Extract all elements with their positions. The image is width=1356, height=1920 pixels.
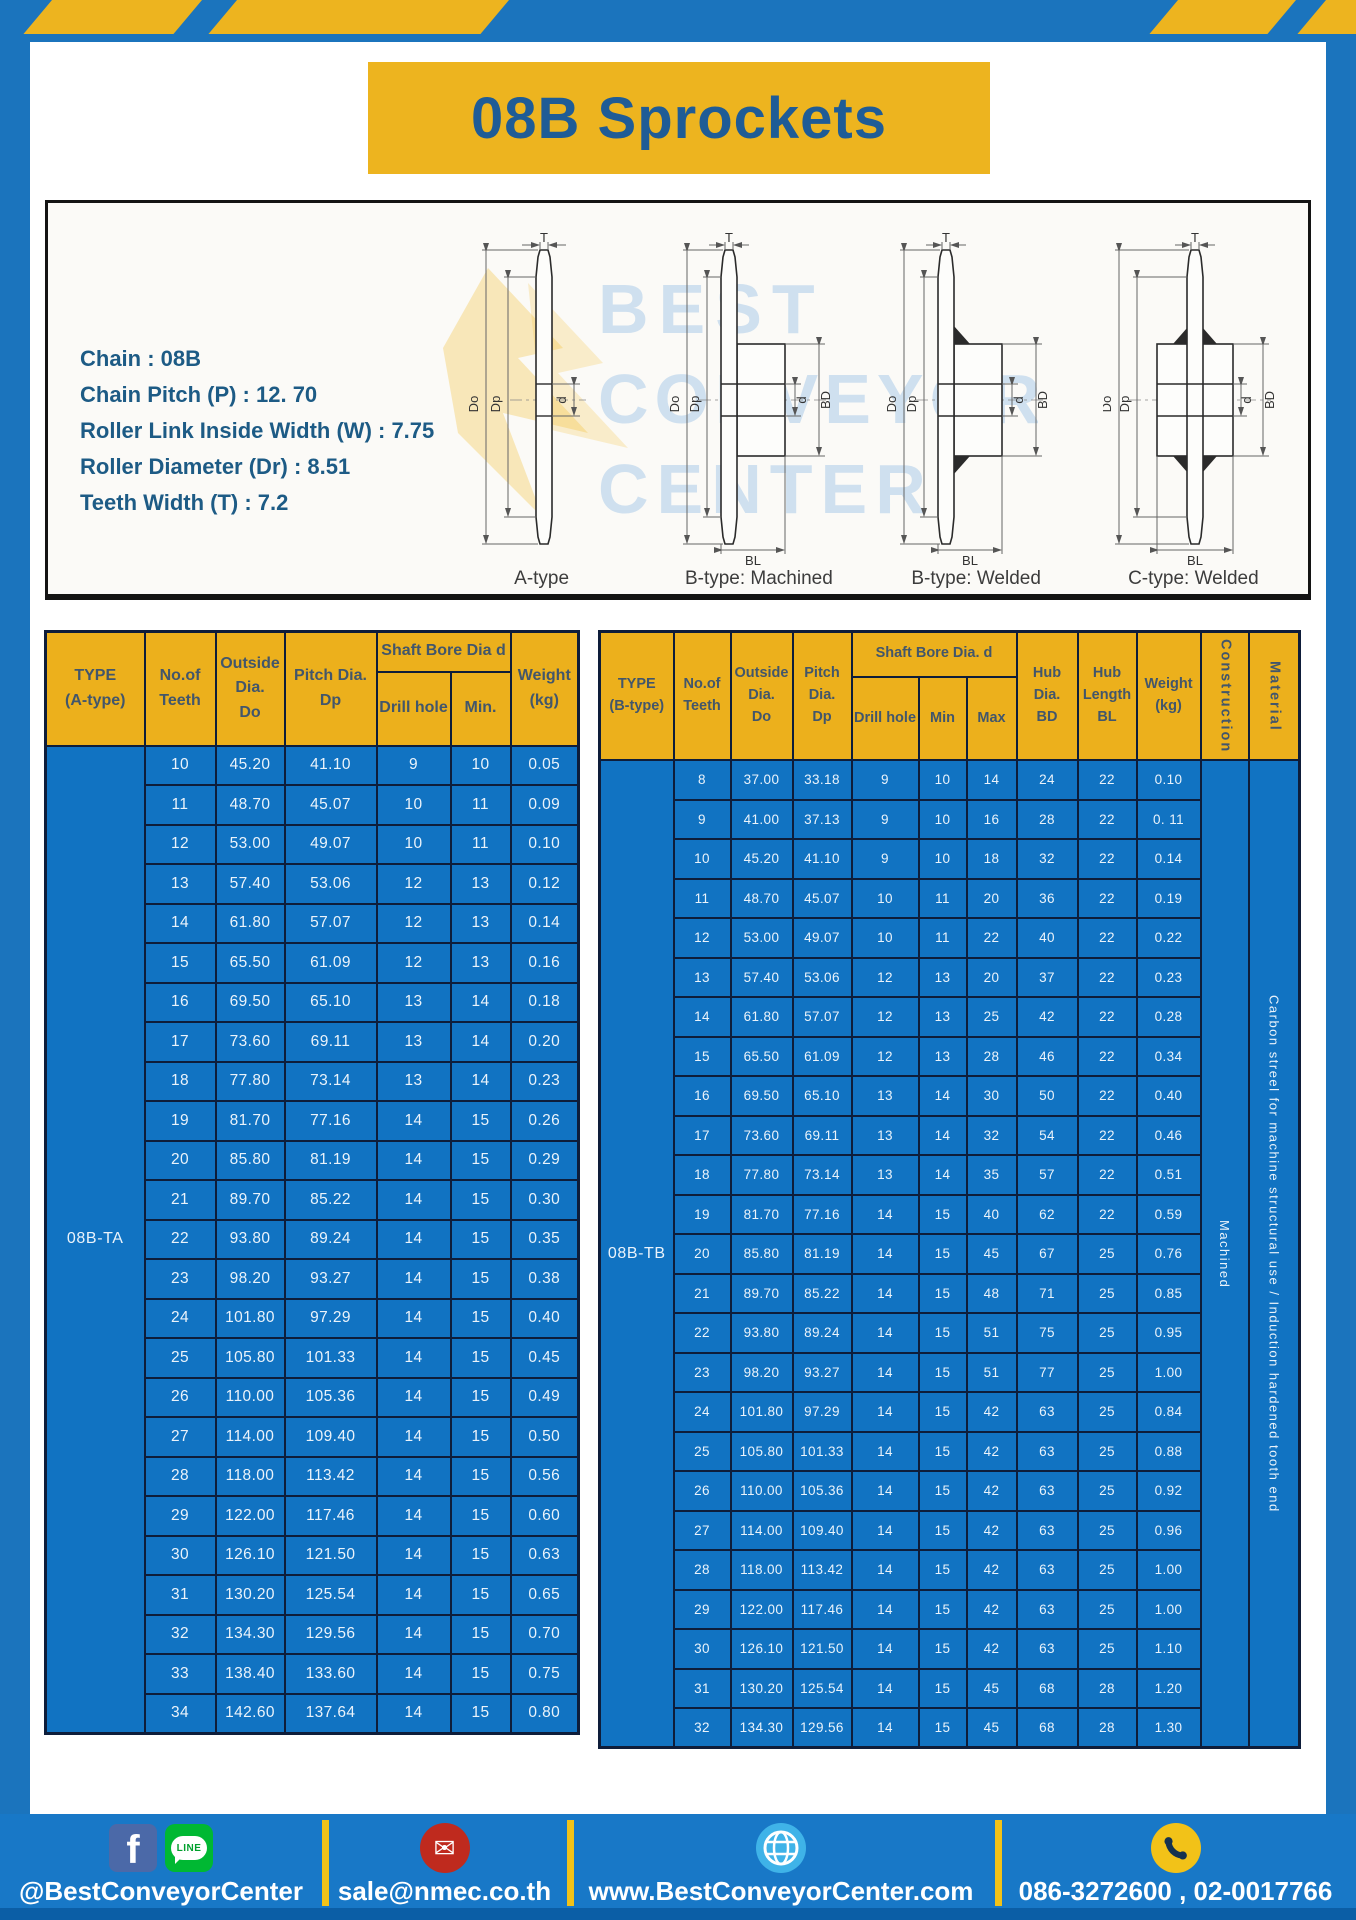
cell-drill-hole: 14 xyxy=(852,1550,919,1590)
table-row: 27114.00109.4014154263250.96 xyxy=(600,1511,1300,1551)
cell-teeth: 18 xyxy=(145,1062,216,1102)
cell-pitch-dia: 69.11 xyxy=(793,1116,852,1156)
stripe-decoration xyxy=(208,0,509,34)
cell-teeth: 34 xyxy=(145,1694,216,1734)
cell-max: 35 xyxy=(967,1155,1017,1195)
cell-drill-hole: 14 xyxy=(377,1654,451,1694)
cell-teeth: 33 xyxy=(145,1654,216,1694)
cell-outside-dia: 98.20 xyxy=(216,1259,285,1299)
header-pitch-a: Pitch Dia. Dp xyxy=(285,632,377,746)
cell-pitch-dia: 113.42 xyxy=(285,1457,377,1497)
footer-social-handle: @BestConveyorCenter xyxy=(19,1876,303,1906)
cell-hub-dia: 32 xyxy=(1017,839,1078,879)
cell-outside-dia: 126.10 xyxy=(216,1536,285,1576)
material-value: Carbon streel for machine structural use… xyxy=(1249,760,1300,1748)
table-row: 31130.20125.5414154568281.20 xyxy=(600,1669,1300,1709)
svg-text:T: T xyxy=(1191,232,1199,245)
cell-teeth: 9 xyxy=(674,800,731,840)
cell-hub-length: 25 xyxy=(1078,1234,1137,1274)
cell-min: 15 xyxy=(919,1669,967,1709)
header-hub-dia-b: Hub Dia. BD xyxy=(1017,632,1078,761)
cell-hub-length: 25 xyxy=(1078,1550,1137,1590)
drawing-c-type-welded: T Do Dp d BD BL C-type: xyxy=(1085,211,1302,595)
footer-social-section: f LINE @BestConveyorCenter xyxy=(0,1814,322,1912)
cell-min: 14 xyxy=(451,1022,511,1062)
cell-min: 15 xyxy=(451,1299,511,1339)
cell-min: 15 xyxy=(919,1353,967,1393)
right-border xyxy=(1326,42,1356,1920)
footer-bottom-strip xyxy=(0,1908,1356,1920)
spec-list: Chain : 08B Chain Pitch (P) : 12. 70 Rol… xyxy=(80,341,460,521)
footer-phone-section: 086-3272600 , 02-0017766 xyxy=(995,1814,1356,1912)
drawing-a-type: T Do Dp d A-type xyxy=(433,211,650,595)
cell-teeth: 12 xyxy=(674,918,731,958)
cell-drill-hole: 14 xyxy=(852,1432,919,1472)
cell-drill-hole: 12 xyxy=(377,943,451,983)
cell-hub-dia: 63 xyxy=(1017,1432,1078,1472)
table-row: 941.0037.139101628220. 11 xyxy=(600,800,1300,840)
header-drill-hole-b: Drill hole xyxy=(852,677,919,761)
cell-teeth: 11 xyxy=(145,785,216,825)
cell-hub-dia: 63 xyxy=(1017,1550,1078,1590)
header-construction-b: Construction xyxy=(1201,632,1249,761)
line-bubble-tail xyxy=(175,1857,182,1864)
cell-teeth: 29 xyxy=(674,1590,731,1630)
header-hub-length-b: Hub Length BL xyxy=(1078,632,1137,761)
cell-teeth: 25 xyxy=(674,1432,731,1472)
cell-drill-hole: 14 xyxy=(852,1234,919,1274)
cell-teeth: 10 xyxy=(145,746,216,786)
cell-weight: 1.10 xyxy=(1137,1629,1201,1669)
cell-hub-dia: 42 xyxy=(1017,997,1078,1037)
cell-hub-length: 22 xyxy=(1078,800,1137,840)
cell-outside-dia: 98.20 xyxy=(731,1353,793,1393)
spec-chain-pitch: Chain Pitch (P) : 12. 70 xyxy=(80,377,460,413)
cell-teeth: 15 xyxy=(145,943,216,983)
cell-hub-length: 25 xyxy=(1078,1629,1137,1669)
table-row: 08B-TB837.0033.189101424220.10MachinedCa… xyxy=(600,760,1300,800)
cell-drill-hole: 14 xyxy=(377,1417,451,1457)
cell-teeth: 31 xyxy=(674,1669,731,1709)
cell-drill-hole: 14 xyxy=(377,1615,451,1655)
table-row: 08B-TA1045.2041.109100.05 xyxy=(46,746,579,786)
svg-text:BD: BD xyxy=(1262,391,1277,409)
cell-outside-dia: 69.50 xyxy=(731,1076,793,1116)
cell-hub-dia: 63 xyxy=(1017,1590,1078,1630)
cell-hub-dia: 75 xyxy=(1017,1313,1078,1353)
cell-weight: 0.34 xyxy=(1137,1037,1201,1077)
cell-weight: 1.30 xyxy=(1137,1708,1201,1748)
cell-min: 13 xyxy=(919,958,967,998)
cell-teeth: 29 xyxy=(145,1496,216,1536)
cell-min: 13 xyxy=(451,864,511,904)
cell-teeth: 30 xyxy=(145,1536,216,1576)
cell-outside-dia: 105.80 xyxy=(216,1338,285,1378)
header-teeth-a: No.of Teeth xyxy=(145,632,216,746)
cell-max: 22 xyxy=(967,918,1017,958)
header-outside-a: Outside Dia. Do xyxy=(216,632,285,746)
cell-hub-length: 22 xyxy=(1078,997,1137,1037)
cell-min: 14 xyxy=(919,1076,967,1116)
cell-outside-dia: 114.00 xyxy=(731,1511,793,1551)
cell-pitch-dia: 73.14 xyxy=(285,1062,377,1102)
cell-pitch-dia: 93.27 xyxy=(793,1353,852,1393)
cell-outside-dia: 77.80 xyxy=(216,1062,285,1102)
spec-roller-width: Roller Link Inside Width (W) : 7.75 xyxy=(80,413,460,449)
table-row: 1253.0049.0710112240220.22 xyxy=(600,918,1300,958)
svg-text:Do: Do xyxy=(886,396,899,413)
cell-hub-length: 25 xyxy=(1078,1590,1137,1630)
cell-pitch-dia: 65.10 xyxy=(793,1076,852,1116)
cell-hub-length: 22 xyxy=(1078,958,1137,998)
cell-drill-hole: 13 xyxy=(377,1022,451,1062)
cell-max: 51 xyxy=(967,1313,1017,1353)
header-weight-a: Weight (kg) xyxy=(511,632,579,746)
stripe-decoration xyxy=(1297,0,1356,34)
globe-icon xyxy=(756,1823,806,1873)
cell-teeth: 24 xyxy=(145,1299,216,1339)
cell-max: 42 xyxy=(967,1392,1017,1432)
cell-min: 14 xyxy=(919,1116,967,1156)
header-weight-b: Weight (kg) xyxy=(1137,632,1201,761)
cell-hub-length: 22 xyxy=(1078,1155,1137,1195)
spec-chain: Chain : 08B xyxy=(80,341,460,377)
cell-pitch-dia: 113.42 xyxy=(793,1550,852,1590)
cell-teeth: 8 xyxy=(674,760,731,800)
cell-weight: 0.22 xyxy=(1137,918,1201,958)
cell-max: 48 xyxy=(967,1274,1017,1314)
svg-text:Dp: Dp xyxy=(687,396,702,413)
cell-pitch-dia: 49.07 xyxy=(285,825,377,865)
cell-max: 42 xyxy=(967,1432,1017,1472)
drawing-b-type-welded: T Do Dp d BD BL B-type: xyxy=(868,211,1085,595)
table-row: 2189.7085.2214154871250.85 xyxy=(600,1274,1300,1314)
cell-weight: 0.18 xyxy=(511,983,579,1023)
cell-teeth: 20 xyxy=(674,1234,731,1274)
cell-pitch-dia: 129.56 xyxy=(793,1708,852,1748)
cell-pitch-dia: 53.06 xyxy=(793,958,852,998)
cell-teeth: 32 xyxy=(145,1615,216,1655)
cell-min: 15 xyxy=(451,1259,511,1299)
cell-teeth: 32 xyxy=(674,1708,731,1748)
cell-weight: 0.76 xyxy=(1137,1234,1201,1274)
svg-text:Do: Do xyxy=(466,396,481,413)
cell-drill-hole: 12 xyxy=(377,904,451,944)
cell-pitch-dia: 133.60 xyxy=(285,1654,377,1694)
cell-max: 18 xyxy=(967,839,1017,879)
table-row: 1357.4053.0612132037220.23 xyxy=(600,958,1300,998)
cell-teeth: 11 xyxy=(674,879,731,919)
svg-text:Do: Do xyxy=(1103,396,1114,413)
svg-text:d: d xyxy=(794,396,809,403)
cell-outside-dia: 118.00 xyxy=(216,1457,285,1497)
cell-pitch-dia: 125.54 xyxy=(285,1575,377,1615)
cell-pitch-dia: 89.24 xyxy=(793,1313,852,1353)
cell-max: 16 xyxy=(967,800,1017,840)
stripe-decoration xyxy=(23,0,202,34)
caption-a-type: A-type xyxy=(514,567,569,595)
svg-text:T: T xyxy=(942,232,950,245)
cell-teeth: 31 xyxy=(145,1575,216,1615)
cell-teeth: 19 xyxy=(145,1101,216,1141)
cell-drill-hole: 13 xyxy=(377,1062,451,1102)
cell-weight: 0.20 xyxy=(511,1022,579,1062)
cell-pitch-dia: 77.16 xyxy=(793,1195,852,1235)
cell-hub-dia: 71 xyxy=(1017,1274,1078,1314)
cell-outside-dia: 114.00 xyxy=(216,1417,285,1457)
caption-b-type-welded: B-type: Welded xyxy=(911,567,1041,595)
cell-drill-hole: 12 xyxy=(852,958,919,998)
table-row: 25105.80101.3314154263250.88 xyxy=(600,1432,1300,1472)
cell-weight: 0.88 xyxy=(1137,1432,1201,1472)
cell-max: 25 xyxy=(967,997,1017,1037)
cell-pitch-dia: 65.10 xyxy=(285,983,377,1023)
cell-drill-hole: 14 xyxy=(377,1575,451,1615)
cell-min: 15 xyxy=(919,1392,967,1432)
cell-weight: 1.20 xyxy=(1137,1669,1201,1709)
cell-min: 14 xyxy=(919,1155,967,1195)
cell-drill-hole: 10 xyxy=(852,879,919,919)
cell-weight: 0.23 xyxy=(511,1062,579,1102)
cell-min: 14 xyxy=(451,983,511,1023)
cell-outside-dia: 77.80 xyxy=(731,1155,793,1195)
cell-teeth: 21 xyxy=(145,1180,216,1220)
cell-teeth: 13 xyxy=(145,864,216,904)
cell-outside-dia: 101.80 xyxy=(216,1299,285,1339)
cell-weight: 0.51 xyxy=(1137,1155,1201,1195)
cell-drill-hole: 10 xyxy=(852,918,919,958)
cell-weight: 0.56 xyxy=(511,1457,579,1497)
cell-outside-dia: 105.80 xyxy=(731,1432,793,1472)
cell-drill-hole: 14 xyxy=(377,1496,451,1536)
cell-hub-length: 22 xyxy=(1078,1195,1137,1235)
cell-drill-hole: 14 xyxy=(852,1313,919,1353)
cell-outside-dia: 130.20 xyxy=(216,1575,285,1615)
cell-outside-dia: 61.80 xyxy=(216,904,285,944)
cell-weight: 0.40 xyxy=(511,1299,579,1339)
cell-min: 15 xyxy=(919,1629,967,1669)
cell-drill-hole: 14 xyxy=(852,1274,919,1314)
cell-pitch-dia: 61.09 xyxy=(793,1037,852,1077)
cell-max: 20 xyxy=(967,958,1017,998)
cell-pitch-dia: 109.40 xyxy=(285,1417,377,1457)
header-min-a: Min. xyxy=(451,672,511,746)
cell-outside-dia: 101.80 xyxy=(731,1392,793,1432)
svg-text:Dp: Dp xyxy=(488,396,503,413)
cell-hub-dia: 54 xyxy=(1017,1116,1078,1156)
cell-hub-length: 22 xyxy=(1078,918,1137,958)
cell-outside-dia: 45.20 xyxy=(731,839,793,879)
cell-drill-hole: 14 xyxy=(377,1378,451,1418)
cell-min: 15 xyxy=(451,1496,511,1536)
cell-outside-dia: 53.00 xyxy=(216,825,285,865)
cell-outside-dia: 57.40 xyxy=(731,958,793,998)
cell-pitch-dia: 109.40 xyxy=(793,1511,852,1551)
cell-hub-dia: 68 xyxy=(1017,1669,1078,1709)
cell-drill-hole: 14 xyxy=(377,1536,451,1576)
cell-min: 11 xyxy=(919,918,967,958)
cell-min: 15 xyxy=(919,1195,967,1235)
cell-drill-hole: 13 xyxy=(852,1155,919,1195)
cell-outside-dia: 110.00 xyxy=(216,1378,285,1418)
cell-min: 15 xyxy=(451,1180,511,1220)
cell-pitch-dia: 85.22 xyxy=(285,1180,377,1220)
cell-weight: 0.70 xyxy=(511,1615,579,1655)
header-type-a: TYPE (A-type) xyxy=(46,632,145,746)
table-row: 2293.8089.2414155175250.95 xyxy=(600,1313,1300,1353)
cell-hub-length: 25 xyxy=(1078,1353,1137,1393)
drawing-b-type-machined: T Do Dp d BD BL B-type: xyxy=(650,211,867,595)
cell-weight: 0.29 xyxy=(511,1141,579,1181)
table-row: 1565.5061.0912132846220.34 xyxy=(600,1037,1300,1077)
cell-outside-dia: 122.00 xyxy=(216,1496,285,1536)
svg-text:d: d xyxy=(1011,396,1026,403)
cell-min: 13 xyxy=(919,1037,967,1077)
cell-pitch-dia: 41.10 xyxy=(793,839,852,879)
cell-drill-hole: 14 xyxy=(377,1141,451,1181)
cell-weight: 0.49 xyxy=(511,1378,579,1418)
cell-pitch-dia: 61.09 xyxy=(285,943,377,983)
table-b-type: TYPE (B-type) No.of Teeth Outside Dia. D… xyxy=(598,630,1298,1749)
cell-weight: 0.75 xyxy=(511,1654,579,1694)
cell-min: 15 xyxy=(451,1220,511,1260)
cell-min: 15 xyxy=(451,1654,511,1694)
cell-max: 30 xyxy=(967,1076,1017,1116)
cell-outside-dia: 93.80 xyxy=(731,1313,793,1353)
svg-text:d: d xyxy=(554,396,569,403)
cell-drill-hole: 12 xyxy=(852,997,919,1037)
cell-hub-length: 22 xyxy=(1078,1076,1137,1116)
table-row: 2398.2093.2714155177251.00 xyxy=(600,1353,1300,1393)
cell-pitch-dia: 117.46 xyxy=(285,1496,377,1536)
cell-drill-hole: 14 xyxy=(377,1299,451,1339)
table-row: 24101.8097.2914154263250.84 xyxy=(600,1392,1300,1432)
cell-hub-length: 25 xyxy=(1078,1432,1137,1472)
phone-icon xyxy=(1151,1823,1201,1873)
cell-min: 13 xyxy=(919,997,967,1037)
cell-pitch-dia: 57.07 xyxy=(285,904,377,944)
table-row: 1045.2041.109101832220.14 xyxy=(600,839,1300,879)
cell-outside-dia: 45.20 xyxy=(216,746,285,786)
table-row: 1877.8073.1413143557220.51 xyxy=(600,1155,1300,1195)
header-max-b: Max xyxy=(967,677,1017,761)
cell-teeth: 17 xyxy=(674,1116,731,1156)
cell-max: 51 xyxy=(967,1353,1017,1393)
cell-outside-dia: 41.00 xyxy=(731,800,793,840)
cell-teeth: 28 xyxy=(674,1550,731,1590)
cell-pitch-dia: 57.07 xyxy=(793,997,852,1037)
mail-icon: ✉ xyxy=(420,1823,470,1873)
table-row: 1669.5065.1013143050220.40 xyxy=(600,1076,1300,1116)
cell-outside-dia: 53.00 xyxy=(731,918,793,958)
social-icons: f LINE xyxy=(109,1820,213,1876)
cell-drill-hole: 14 xyxy=(377,1101,451,1141)
cell-teeth: 13 xyxy=(674,958,731,998)
cell-drill-hole: 14 xyxy=(852,1669,919,1709)
cell-max: 20 xyxy=(967,879,1017,919)
cell-min: 11 xyxy=(919,879,967,919)
cell-hub-dia: 28 xyxy=(1017,800,1078,840)
footer-website-section: www.BestConveyorCenter.com xyxy=(567,1814,995,1912)
cell-min: 15 xyxy=(919,1511,967,1551)
cell-hub-length: 22 xyxy=(1078,1116,1137,1156)
header-shaft-bore-b: Shaft Bore Dia. d xyxy=(852,632,1017,677)
footer-phone: 086-3272600 , 02-0017766 xyxy=(1019,1876,1333,1906)
cell-teeth: 18 xyxy=(674,1155,731,1195)
cell-weight: 0.05 xyxy=(511,746,579,786)
caption-c-type-welded: C-type: Welded xyxy=(1128,567,1259,595)
cell-weight: 0.63 xyxy=(511,1536,579,1576)
type-label-08b-ta: 08B-TA xyxy=(46,746,145,1734)
cell-min: 15 xyxy=(451,1378,511,1418)
cell-teeth: 10 xyxy=(674,839,731,879)
cell-outside-dia: 48.70 xyxy=(731,879,793,919)
top-border-bar xyxy=(0,0,1356,42)
cell-hub-length: 25 xyxy=(1078,1313,1137,1353)
cell-hub-length: 28 xyxy=(1078,1669,1137,1709)
cell-teeth: 16 xyxy=(145,983,216,1023)
svg-text:BD: BD xyxy=(818,391,833,409)
table-row: 30126.10121.5014154263251.10 xyxy=(600,1629,1300,1669)
footer-website: www.BestConveyorCenter.com xyxy=(589,1876,974,1906)
table-row: 29122.00117.4614154263251.00 xyxy=(600,1590,1300,1630)
table-row: 2085.8081.1914154567250.76 xyxy=(600,1234,1300,1274)
cell-pitch-dia: 45.07 xyxy=(285,785,377,825)
header-drill-hole-a: Drill hole xyxy=(377,672,451,746)
cell-pitch-dia: 77.16 xyxy=(285,1101,377,1141)
cell-min: 15 xyxy=(451,1575,511,1615)
svg-text:T: T xyxy=(725,232,733,245)
cell-min: 15 xyxy=(451,1457,511,1497)
cell-weight: 0.50 xyxy=(511,1417,579,1457)
cell-drill-hole: 14 xyxy=(852,1629,919,1669)
cell-weight: 0.96 xyxy=(1137,1511,1201,1551)
cell-hub-dia: 63 xyxy=(1017,1392,1078,1432)
cell-drill-hole: 13 xyxy=(852,1116,919,1156)
cell-teeth: 22 xyxy=(674,1313,731,1353)
cell-max: 28 xyxy=(967,1037,1017,1077)
header-teeth-b: No.of Teeth xyxy=(674,632,731,761)
cell-teeth: 26 xyxy=(145,1378,216,1418)
table-a-type: TYPE (A-type) No.of Teeth Outside Dia. D… xyxy=(44,630,577,1735)
cell-weight: 0.35 xyxy=(511,1220,579,1260)
cell-hub-length: 25 xyxy=(1078,1511,1137,1551)
cell-outside-dia: 89.70 xyxy=(731,1274,793,1314)
cell-min: 15 xyxy=(451,1536,511,1576)
cell-drill-hole: 14 xyxy=(852,1471,919,1511)
header-pitch-b: Pitch Dia. Dp xyxy=(793,632,852,761)
cell-teeth: 23 xyxy=(674,1353,731,1393)
page: 08B Sprockets BEST CONVEYOR CENTER Chain… xyxy=(0,0,1356,1920)
cell-drill-hole: 14 xyxy=(852,1511,919,1551)
cell-teeth: 24 xyxy=(674,1392,731,1432)
cell-drill-hole: 12 xyxy=(377,864,451,904)
cell-teeth: 26 xyxy=(674,1471,731,1511)
diagram-panel: BEST CONVEYOR CENTER Chain : 08B Chain P… xyxy=(45,200,1311,600)
cell-drill-hole: 14 xyxy=(852,1392,919,1432)
cell-weight: 0.19 xyxy=(1137,879,1201,919)
title-banner: 08B Sprockets xyxy=(368,62,990,174)
cell-weight: 0.12 xyxy=(511,864,579,904)
cell-weight: 0.45 xyxy=(511,1338,579,1378)
cell-pitch-dia: 33.18 xyxy=(793,760,852,800)
cell-max: 14 xyxy=(967,760,1017,800)
cell-teeth: 14 xyxy=(674,997,731,1037)
cell-weight: 0.65 xyxy=(511,1575,579,1615)
cell-drill-hole: 14 xyxy=(377,1338,451,1378)
header-min-b: Min xyxy=(919,677,967,761)
cell-teeth: 15 xyxy=(674,1037,731,1077)
